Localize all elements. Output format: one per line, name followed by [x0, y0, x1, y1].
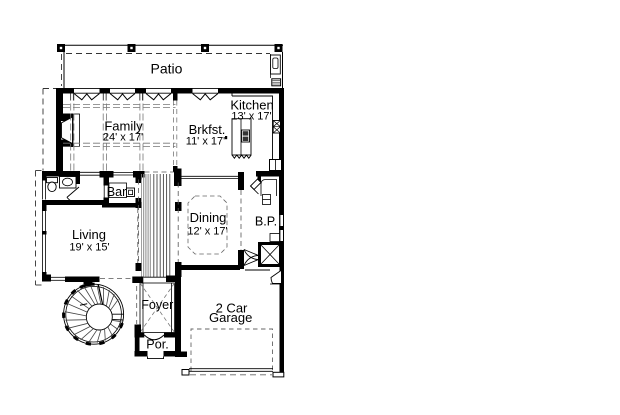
- svg-text:Dining: Dining: [190, 210, 227, 225]
- svg-text:Por.: Por.: [146, 338, 168, 352]
- svg-text:Garage: Garage: [209, 310, 252, 325]
- svg-text:13' x 17': 13' x 17': [231, 110, 271, 122]
- svg-text:11' x 17': 11' x 17': [186, 136, 225, 148]
- svg-text:B.P.: B.P.: [255, 215, 277, 229]
- svg-text:Foyer: Foyer: [141, 298, 173, 312]
- svg-text:19' x 15': 19' x 15': [69, 242, 109, 254]
- svg-text:12' x 17': 12' x 17': [187, 226, 227, 238]
- svg-text:24' x 17': 24' x 17': [103, 132, 143, 144]
- svg-text:Living: Living: [72, 227, 106, 242]
- svg-text:Patio: Patio: [151, 61, 183, 77]
- svg-text:Bar: Bar: [107, 185, 127, 199]
